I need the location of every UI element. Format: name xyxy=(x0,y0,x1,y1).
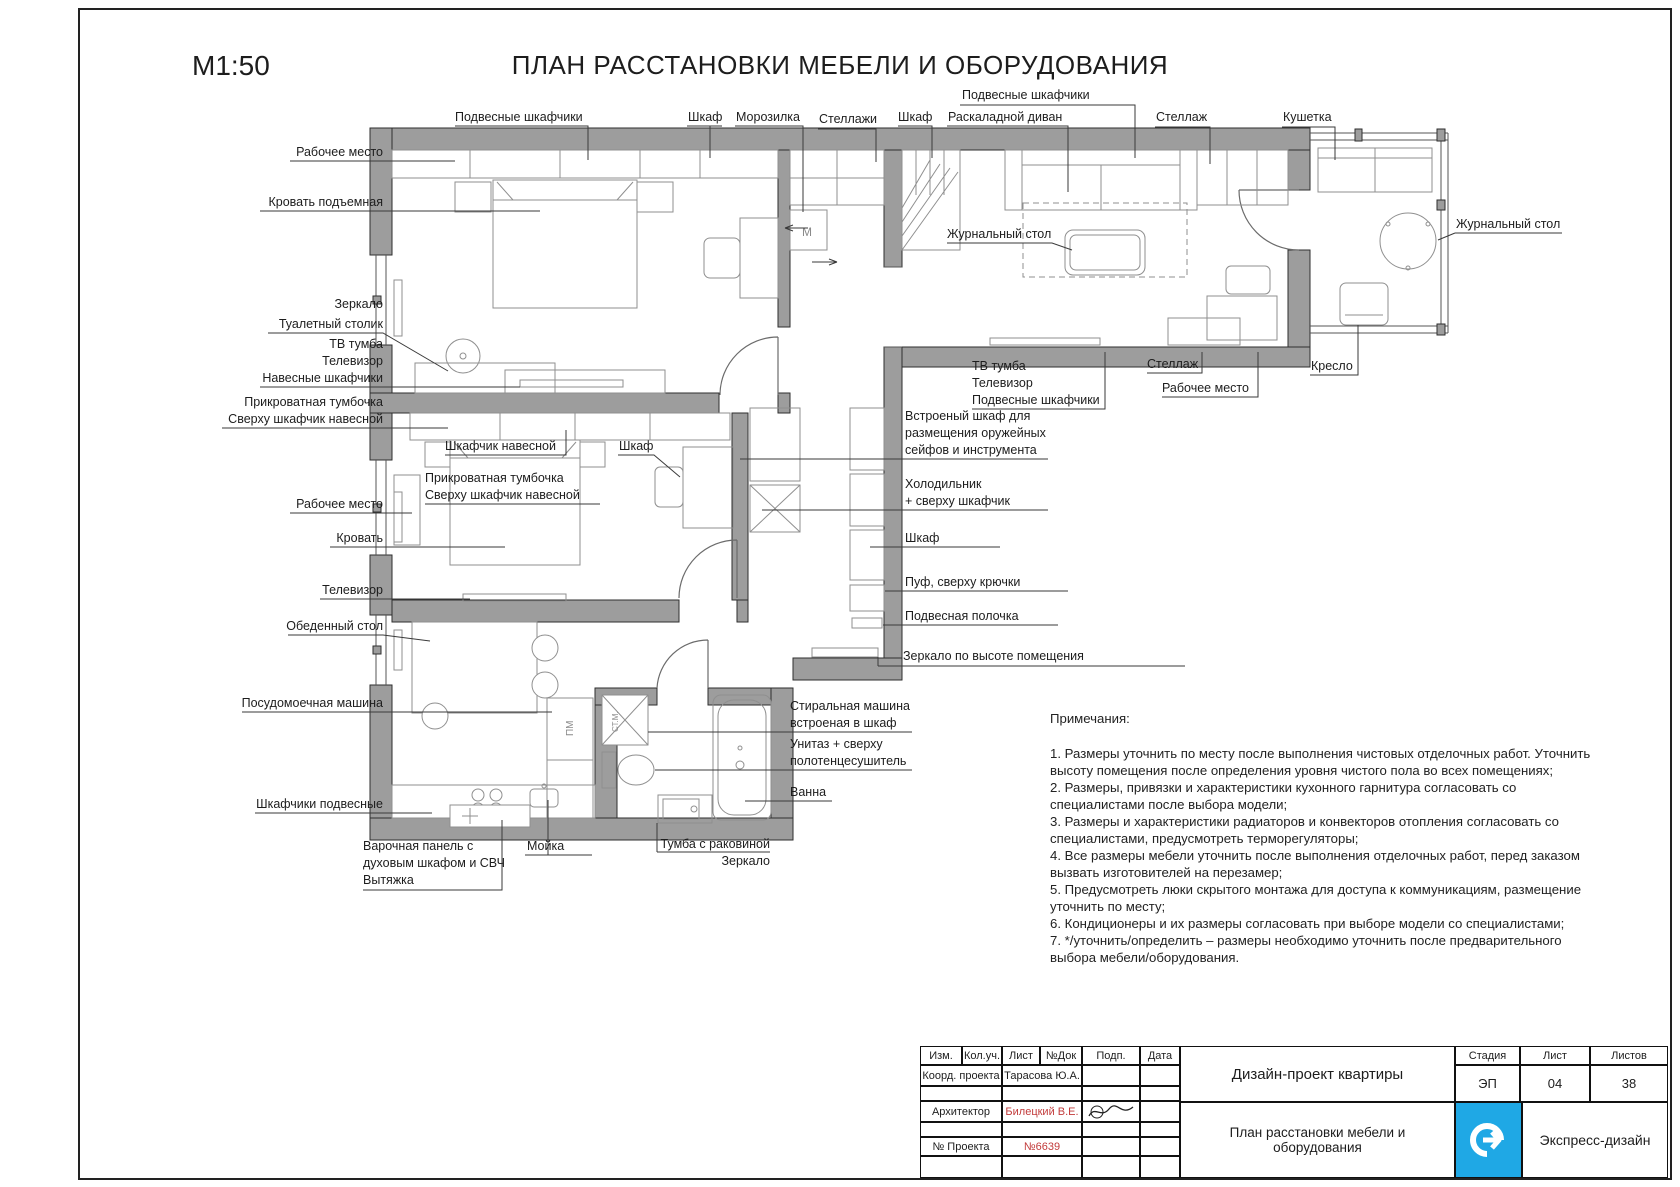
tb-stage-label: Стадия xyxy=(1455,1046,1520,1065)
tb-arch-label: Архитектор xyxy=(920,1101,1002,1122)
tb-empty xyxy=(1140,1086,1180,1101)
tb-empty xyxy=(1140,1101,1180,1122)
tb-col-list: Лист xyxy=(1002,1046,1040,1065)
label-hanging-cabinets-4: Подвесные шкафчики xyxy=(972,393,1100,408)
label-daybed: Кушетка xyxy=(1283,110,1332,125)
label-hood: Вытяжка xyxy=(363,873,414,888)
label-tv-stand-1: ТВ тумба xyxy=(329,337,383,352)
tb-proj-value: №6639 xyxy=(1002,1137,1082,1156)
tb-project-name: Дизайн-проект квартиры xyxy=(1180,1046,1455,1102)
drawing-sheet: М1:50 ПЛАН РАССТАНОВКИ МЕБЕЛИ И ОБОРУДОВ… xyxy=(0,0,1680,1187)
label-mirror-full: Зеркало по высоте помещения xyxy=(903,649,1084,664)
label-wardrobe-1: Шкаф xyxy=(688,110,722,125)
label-tv-1: Телевизор xyxy=(322,354,383,369)
tb-empty xyxy=(1082,1065,1140,1086)
label-workplace-3: Рабочее место xyxy=(1162,381,1249,396)
furniture-balcony xyxy=(1318,148,1436,325)
tb-signature xyxy=(1082,1101,1140,1122)
label-vanity: Тумба с раковиной xyxy=(661,837,770,852)
label-hanging-cabinets-1: Подвесные шкафчики xyxy=(455,110,583,125)
tb-empty xyxy=(920,1122,1002,1137)
tb-empty xyxy=(1082,1122,1140,1137)
label-bedside-1b: Сверху шкафчик навесной xyxy=(228,412,383,427)
tb-arch-value: Билецкий В.Е. xyxy=(1002,1101,1082,1122)
tb-empty xyxy=(920,1086,1002,1101)
tb-empty xyxy=(1002,1086,1082,1101)
label-dishwasher: Посудомоечная машина xyxy=(242,696,383,711)
label-wardrobe-2: Шкаф xyxy=(898,110,932,125)
label-bedside-2b: Сверху шкафчик навесной xyxy=(425,488,580,503)
tb-empty xyxy=(1002,1122,1082,1137)
label-builtin-2: размещения оружейных xyxy=(905,426,1046,441)
label-fridge-2: + сверху шкафчик xyxy=(905,494,1010,509)
label-dressing-table: Туалетный столик xyxy=(279,317,383,332)
tb-sheet-label: Лист xyxy=(1520,1046,1590,1065)
note-item: 3. Размеры и характеристики радиаторов и… xyxy=(1050,813,1606,847)
tb-col-data: Дата xyxy=(1140,1046,1180,1065)
washer-mark: СТ.М. xyxy=(611,711,620,732)
express-design-logo-icon xyxy=(1463,1114,1515,1166)
label-bath: Ванна xyxy=(790,785,826,800)
tb-sheets-label: Листов xyxy=(1590,1046,1668,1065)
label-folding-sofa: Раскаладной диван xyxy=(948,110,1062,125)
label-wall-shelf: Подвесная полочка xyxy=(905,609,1019,624)
label-dining-table: Обеденный стол xyxy=(286,619,383,634)
tb-empty xyxy=(1082,1156,1140,1178)
tb-coord-label: Коорд. проекта xyxy=(920,1065,1002,1086)
label-coffee-table-2: Журнальный стол xyxy=(1456,217,1560,232)
label-workplace-2: Рабочее место xyxy=(296,497,383,512)
label-hanging-cabinets-3: Шкафчики подвесные xyxy=(256,797,383,812)
label-washer-2: встроеная в шкаф xyxy=(790,716,897,731)
dishwasher-mark: ПМ xyxy=(565,720,576,736)
label-tv-stand-2: ТВ тумба xyxy=(972,359,1026,374)
note-item: 6. Кондиционеры и их размеры согласовать… xyxy=(1050,915,1606,932)
note-item: 5. Предусмотреть люки скрытого монтажа д… xyxy=(1050,881,1606,915)
label-wall-cabinet-small: Шкафчик навесной xyxy=(445,439,556,454)
tb-empty xyxy=(1140,1156,1180,1178)
label-freezer: Морозилка xyxy=(736,110,800,125)
label-mirror-1: Зеркало xyxy=(334,297,383,312)
tb-sheets-value: 38 xyxy=(1590,1065,1668,1102)
label-builtin-1: Встроеный шкаф для xyxy=(905,409,1030,424)
label-wardrobe-4: Шкаф xyxy=(905,531,939,546)
furniture-bathroom: СТ.М. xyxy=(602,695,771,823)
tb-col-ndok: №Док xyxy=(1040,1046,1082,1065)
label-shelving-3: Стеллаж xyxy=(1147,357,1198,372)
tb-empty xyxy=(1140,1065,1180,1086)
label-wall-cabinets-1: Навесные шкафчики xyxy=(262,371,383,386)
label-hanging-cabinets-2: Подвесные шкафчики xyxy=(962,88,1090,103)
tb-col-podp: Подп. xyxy=(1082,1046,1140,1065)
label-armchair: Кресло xyxy=(1311,359,1353,374)
label-tv-2: Телевизор xyxy=(322,583,383,598)
furniture-kitchen: ПМ xyxy=(392,622,595,827)
label-sink: Мойка xyxy=(527,839,564,854)
label-toilet-2: полотенцесушитель xyxy=(790,754,906,769)
label-wardrobe-3: Шкаф xyxy=(619,439,653,454)
label-shelving-1: Стеллажи xyxy=(819,112,877,127)
label-toilet-1: Унитаз + сверху xyxy=(790,737,883,752)
furniture-corridor xyxy=(750,408,884,657)
notes-title: Примечания: xyxy=(1050,710,1606,727)
tb-empty xyxy=(1002,1156,1082,1178)
label-bedside-2a: Прикроватная тумбочка xyxy=(425,471,564,486)
tb-col-koluch: Кол.уч. xyxy=(962,1046,1002,1065)
tb-sheet-title: План расстановки мебели и оборудования xyxy=(1180,1102,1455,1178)
note-item: 4. Все размеры мебели уточнить после вып… xyxy=(1050,847,1606,881)
label-builtin-3: сейфов и инструмента xyxy=(905,443,1037,458)
tb-empty xyxy=(1082,1137,1140,1156)
label-bed: Кровать xyxy=(336,531,383,546)
label-washer-1: Стиральная машина xyxy=(790,699,910,714)
tb-col-izm: Изм. xyxy=(920,1046,962,1065)
note-item: 7. */уточнить/определить – размеры необх… xyxy=(1050,932,1606,966)
tb-empty xyxy=(1082,1086,1140,1101)
label-tv-3: Телевизор xyxy=(972,376,1033,391)
company-logo xyxy=(1455,1102,1522,1178)
label-bedside-1a: Прикроватная тумбочка xyxy=(244,395,383,410)
tb-sheet-value: 04 xyxy=(1520,1065,1590,1102)
label-shelving-2: Стеллаж xyxy=(1156,110,1207,125)
tb-empty xyxy=(1140,1137,1180,1156)
signature-icon xyxy=(1085,1103,1137,1121)
tb-coord-value: Тарасова Ю.А. xyxy=(1002,1065,1082,1086)
label-hob-1: Варочная панель с xyxy=(363,839,473,854)
tb-company: Экспресс-дизайн xyxy=(1522,1102,1668,1178)
tb-stage-value: ЭП xyxy=(1455,1065,1520,1102)
furniture-hall: М xyxy=(785,150,884,265)
label-hob-2: духовым шкафом и СВЧ xyxy=(363,856,505,871)
furniture-bedroom1 xyxy=(392,150,778,393)
label-pouf: Пуф, сверху крючки xyxy=(905,575,1020,590)
label-workplace-1: Рабочее место xyxy=(296,145,383,160)
label-coffee-table-1: Журнальный стол xyxy=(947,227,1051,242)
notes-block: Примечания: 1. Размеры уточнить по месту… xyxy=(1050,710,1606,966)
furniture-living xyxy=(990,150,1288,345)
note-item: 1. Размеры уточнить по месту после выпол… xyxy=(1050,745,1606,779)
tb-empty xyxy=(920,1156,1002,1178)
label-mirror-2: Зеркало xyxy=(721,854,770,869)
label-lift-bed: Кровать подъемная xyxy=(268,195,383,210)
label-fridge-1: Холодильник xyxy=(905,477,981,492)
floor-plan: М xyxy=(0,0,1680,1187)
tb-empty xyxy=(1140,1122,1180,1137)
freezer-mark: М xyxy=(802,225,812,239)
note-item: 2. Размеры, привязки и характеристики ку… xyxy=(1050,779,1606,813)
tb-proj-label: № Проекта xyxy=(920,1137,1002,1156)
